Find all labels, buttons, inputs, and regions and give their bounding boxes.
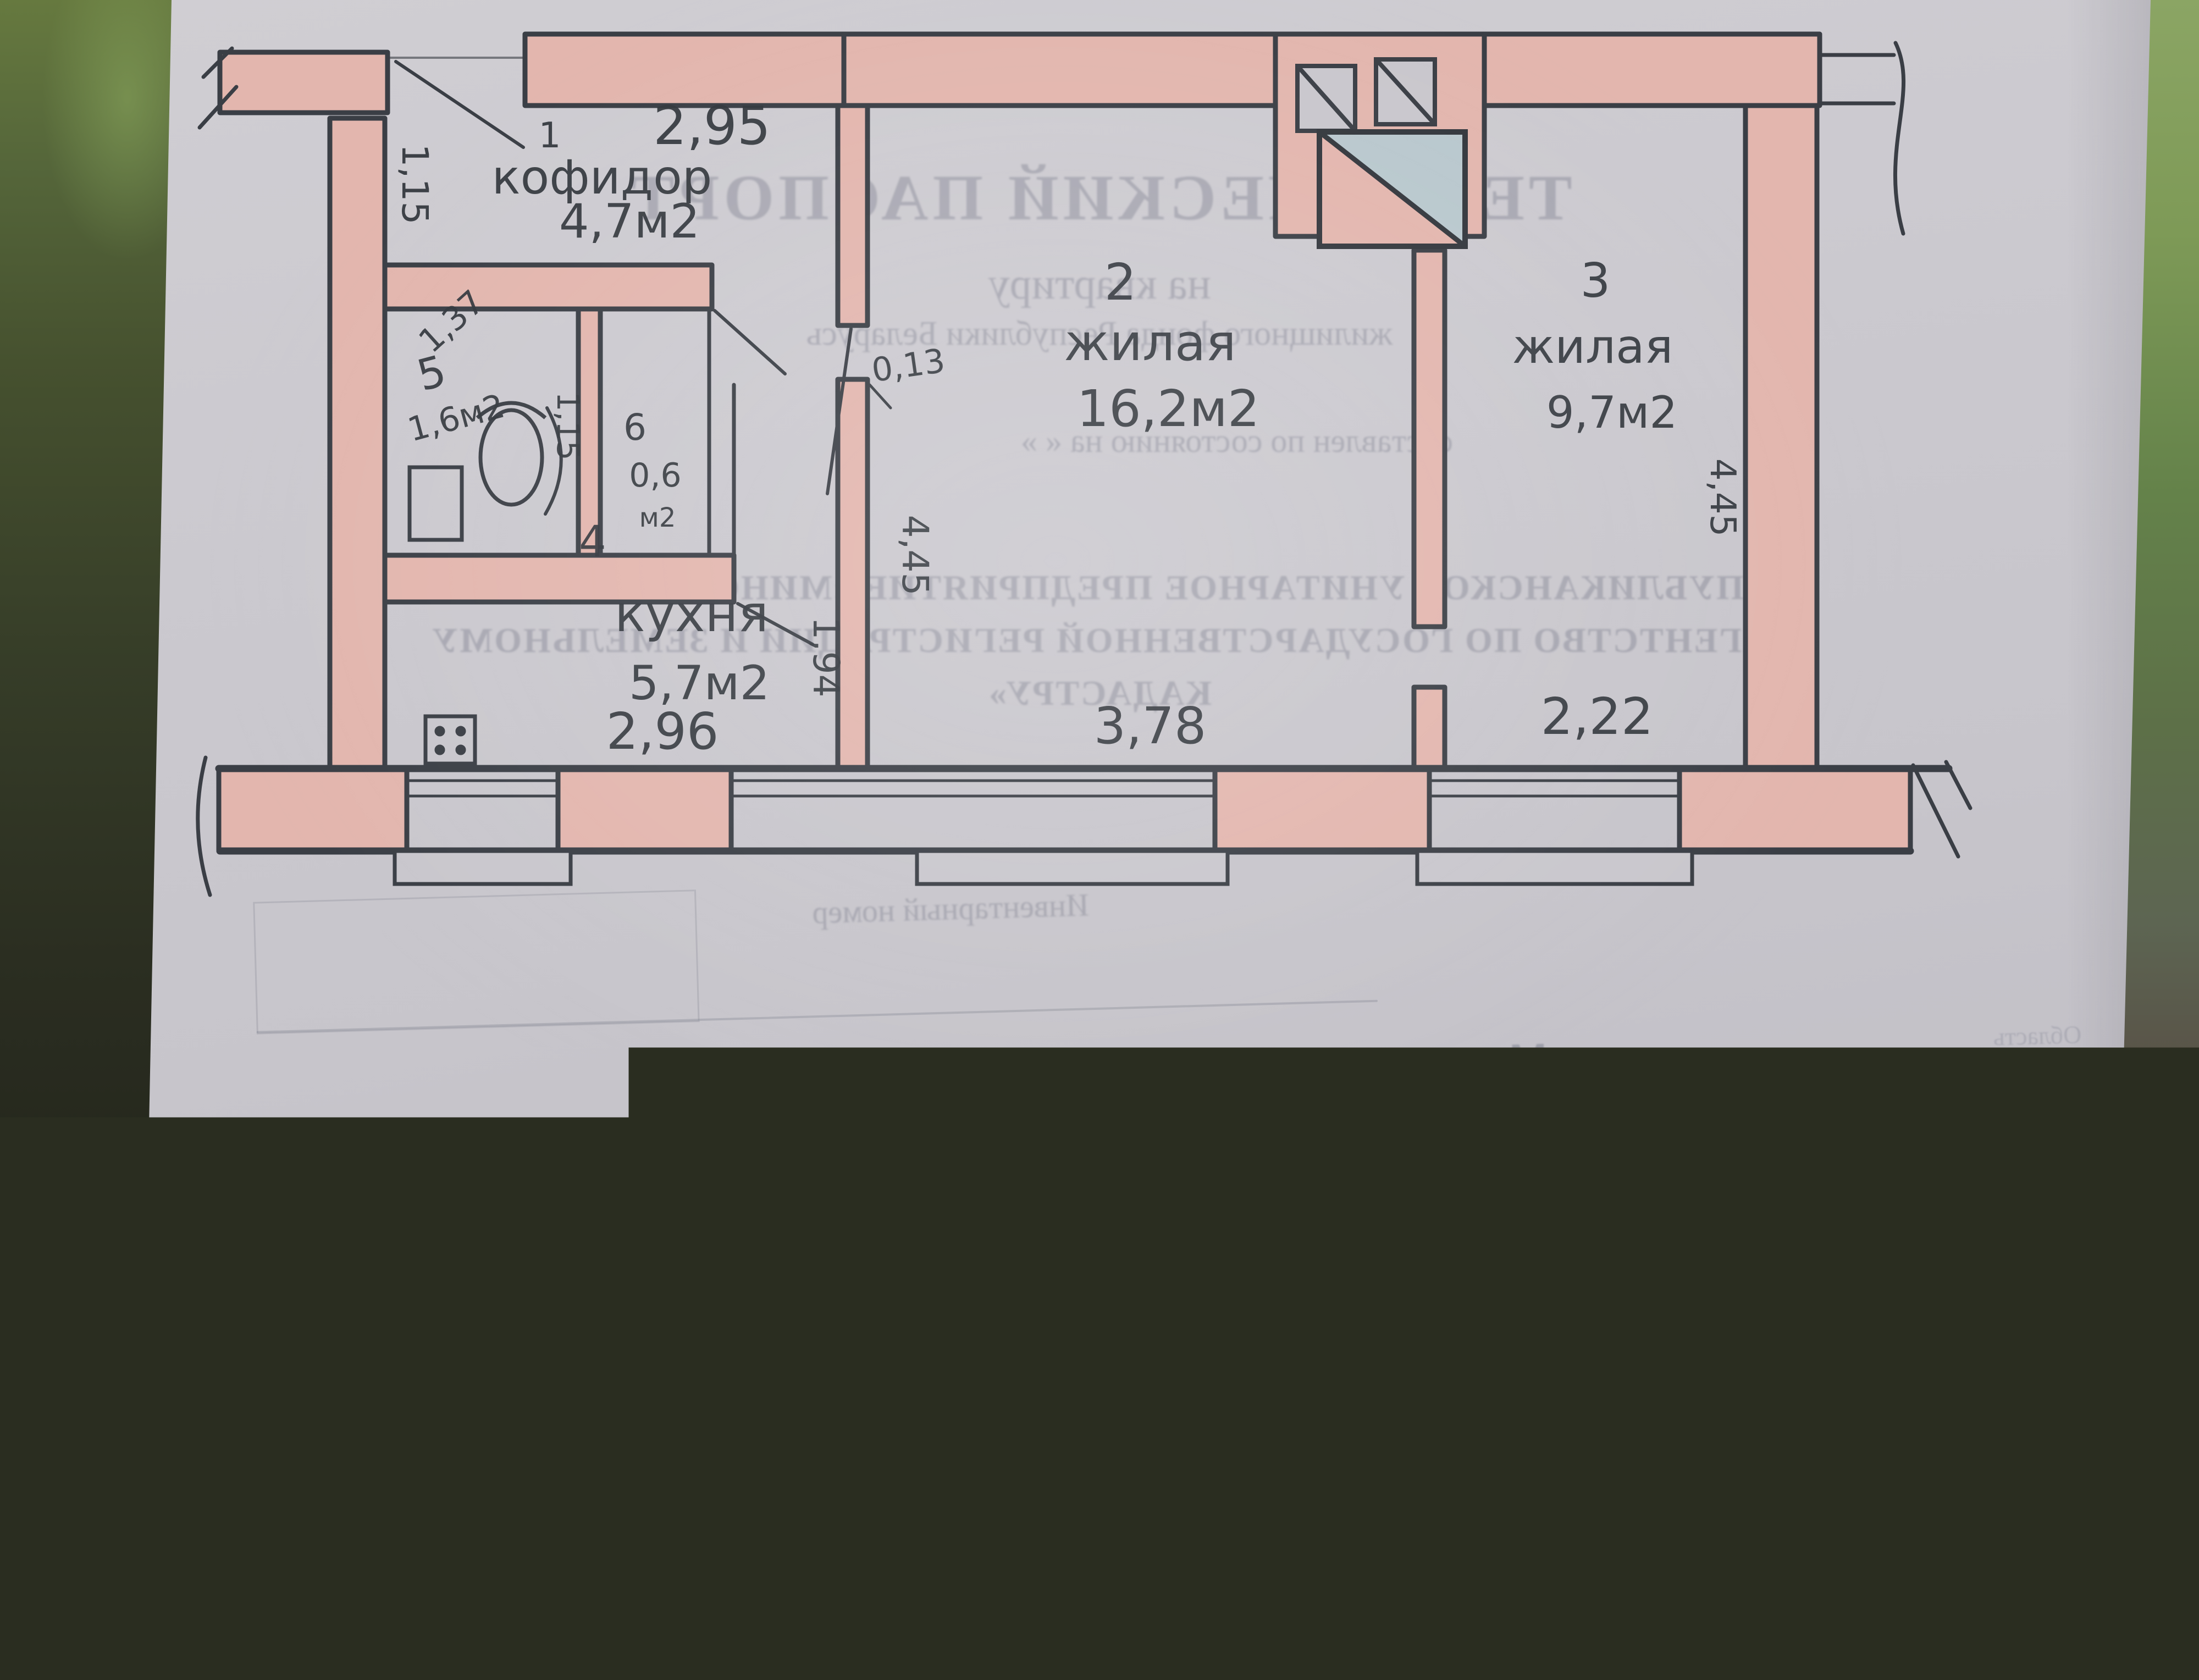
door-leaf-room6 xyxy=(715,311,785,374)
sill-room2 xyxy=(917,851,1228,884)
wall-break-right-top xyxy=(1895,43,1903,234)
sink-icon xyxy=(410,467,462,540)
apartment-box-outline xyxy=(842,1371,1404,1535)
stove-burner xyxy=(457,728,464,734)
pier-bottom-2 xyxy=(558,769,731,850)
room4-number: 4 xyxy=(579,517,606,567)
room3-name: жилая xyxy=(1512,319,1673,374)
wall-top-right-thin xyxy=(1820,55,1894,103)
wall-right-outer xyxy=(1745,106,1817,769)
room2-number: 2 xyxy=(1104,253,1137,312)
room2-name: жилая xyxy=(1064,313,1236,372)
apartment-number-badge: КВ. №14 xyxy=(981,1434,1120,1547)
wall-bathroom-top xyxy=(385,265,712,309)
pier-bottom-4 xyxy=(1679,769,1910,850)
wall-left-outer xyxy=(330,118,385,770)
door-leaf-entrance xyxy=(396,62,523,147)
pier-bottom-3 xyxy=(1215,769,1429,850)
apartment-badge-line2: №14 xyxy=(1013,1489,1090,1527)
dim-kitchen-depth: 1,94 xyxy=(805,617,847,698)
realt-watermark: Realt xyxy=(1679,1428,1975,1562)
dim-room2-width: 3,78 xyxy=(1094,697,1207,755)
wall-top-band xyxy=(844,34,1275,106)
photo-of-technical-passport: { "watermark": { "brand": "Realt" }, "pl… xyxy=(0,0,2199,1649)
wall-room3-top xyxy=(1484,34,1820,106)
room6-area: 0,6 xyxy=(629,456,681,495)
window-kitchen xyxy=(407,781,558,796)
pier-bottom-1 xyxy=(219,769,407,850)
wall-kitchen-room2 xyxy=(838,379,868,769)
room3-number: 3 xyxy=(1581,253,1611,308)
wall-room2-room3-upper xyxy=(1414,250,1445,627)
room5-area: 1,6м2 xyxy=(404,387,509,450)
dim-wall-thickness: 0,13 xyxy=(869,341,947,390)
room6-number: 6 xyxy=(623,406,647,449)
room3-area: 9,7м2 xyxy=(1546,387,1677,438)
dim-room2-depth: 4,45 xyxy=(894,515,936,596)
room4-name: кухня xyxy=(615,584,769,643)
stove-icon xyxy=(426,716,475,764)
passport-page: ТЕХНИЧЕСКИЙ ПАСПОРТ на квартиру жилищног… xyxy=(0,0,2199,1649)
wall-room2-room3-stub xyxy=(1414,687,1445,769)
dim-kitchen-width: 2,96 xyxy=(606,702,719,761)
room5-number: 5 xyxy=(412,346,451,401)
wall-entry-top xyxy=(220,52,388,113)
dim-corridor-width: 2,95 xyxy=(653,95,771,157)
window-room3 xyxy=(1429,781,1679,796)
stove-burner xyxy=(437,747,443,753)
dim-room3-depth: 4,45 xyxy=(1702,458,1743,537)
stove-burner xyxy=(457,747,464,753)
room1-area: 4,7м2 xyxy=(559,194,700,249)
stove-burner xyxy=(437,728,443,734)
wall-thin-segment xyxy=(734,781,929,796)
sill-kitchen xyxy=(395,851,571,884)
apartment-badge-line1: КВ. xyxy=(1020,1454,1079,1491)
window-room2 xyxy=(929,781,1215,796)
dim-room3-width: 2,22 xyxy=(1541,687,1654,746)
stair-square xyxy=(1319,132,1465,246)
room2-area: 16,2м2 xyxy=(1077,379,1260,438)
wall-corridor-room2-stub xyxy=(838,106,868,325)
wall-break-right-bottom xyxy=(1913,762,1970,856)
wall-room6-right xyxy=(709,309,734,555)
room6-area-units: м2 xyxy=(639,502,676,533)
dim-corridor-depth: 1,15 xyxy=(394,144,436,225)
dim-room5: 1,15 xyxy=(550,392,585,461)
sill-room3 xyxy=(1417,851,1692,884)
wall-break-left-bottom xyxy=(198,758,210,895)
